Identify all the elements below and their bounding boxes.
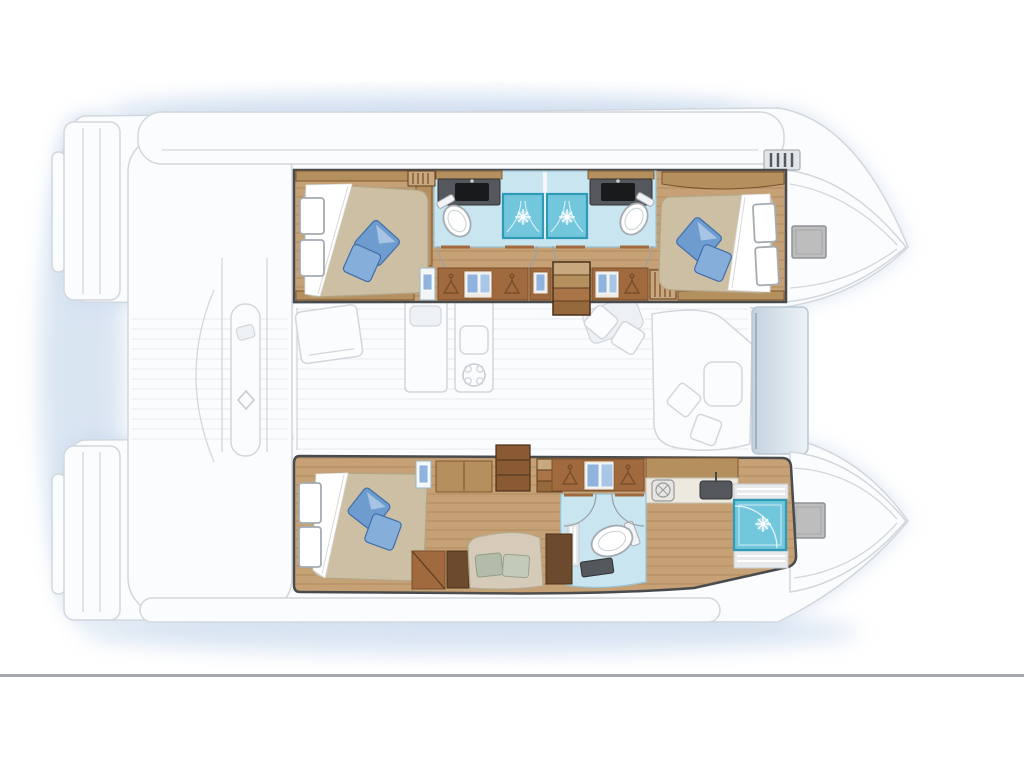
sofa	[468, 532, 543, 589]
port-bow-ghost	[790, 452, 906, 592]
dark-cabinet	[546, 534, 572, 584]
port-hull-interior	[294, 445, 796, 593]
saloon-table	[704, 362, 742, 406]
saloon-ghost	[294, 294, 808, 454]
companionway-stairs	[553, 262, 590, 315]
hanging-locker	[438, 268, 528, 300]
teak-grating	[734, 484, 788, 499]
vanity-unit	[646, 458, 738, 503]
dark-desk	[447, 551, 469, 588]
winch-block	[764, 150, 800, 170]
galley-counter-detail	[410, 306, 441, 326]
aft-headboard	[300, 198, 324, 234]
saloon-front-window-band	[752, 307, 808, 454]
walk-in-shower	[734, 500, 786, 550]
shower	[503, 194, 543, 238]
footer-divider-line	[0, 674, 1024, 677]
hanging-locker	[592, 268, 648, 300]
shelf-unit	[496, 445, 530, 491]
starboard-bow-hatch	[792, 226, 826, 258]
washer-porthole	[652, 480, 674, 501]
teak-grating	[734, 551, 788, 568]
owner-basin	[700, 481, 732, 499]
vanity-basin	[455, 183, 489, 201]
slatted-step	[408, 171, 435, 186]
vanity-basin	[601, 183, 635, 201]
aft-cockpit-ghost	[128, 136, 292, 614]
dresser-steps	[412, 551, 445, 589]
owner-headboard	[299, 483, 321, 523]
aft-guest-cabin	[296, 171, 435, 300]
port-bow-hatch	[792, 503, 825, 538]
owner-head	[546, 494, 646, 587]
forward-shower-room	[734, 484, 788, 568]
hanging-locker	[552, 459, 644, 491]
shower	[547, 194, 587, 238]
catamaran-floorplan	[0, 0, 1024, 768]
forward-headboard	[753, 203, 777, 242]
starboard-hull-interior	[294, 170, 786, 315]
canopy-trim	[296, 171, 408, 181]
